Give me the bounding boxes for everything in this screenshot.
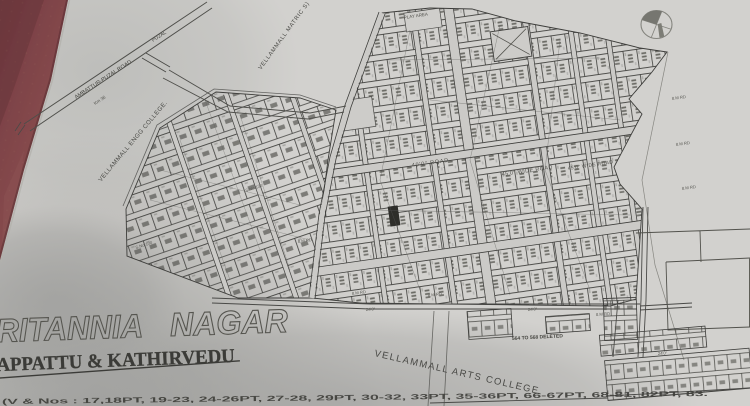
svg-text:24'0": 24'0" <box>658 350 668 356</box>
svg-text:8.M RD: 8.M RD <box>596 311 611 317</box>
svg-text:NAGAR: NAGAR <box>169 303 288 343</box>
svg-text:24'0": 24'0" <box>528 306 538 312</box>
svg-text:BRITANNIA: BRITANNIA <box>0 308 144 350</box>
svg-text:24'0": 24'0" <box>366 306 376 312</box>
